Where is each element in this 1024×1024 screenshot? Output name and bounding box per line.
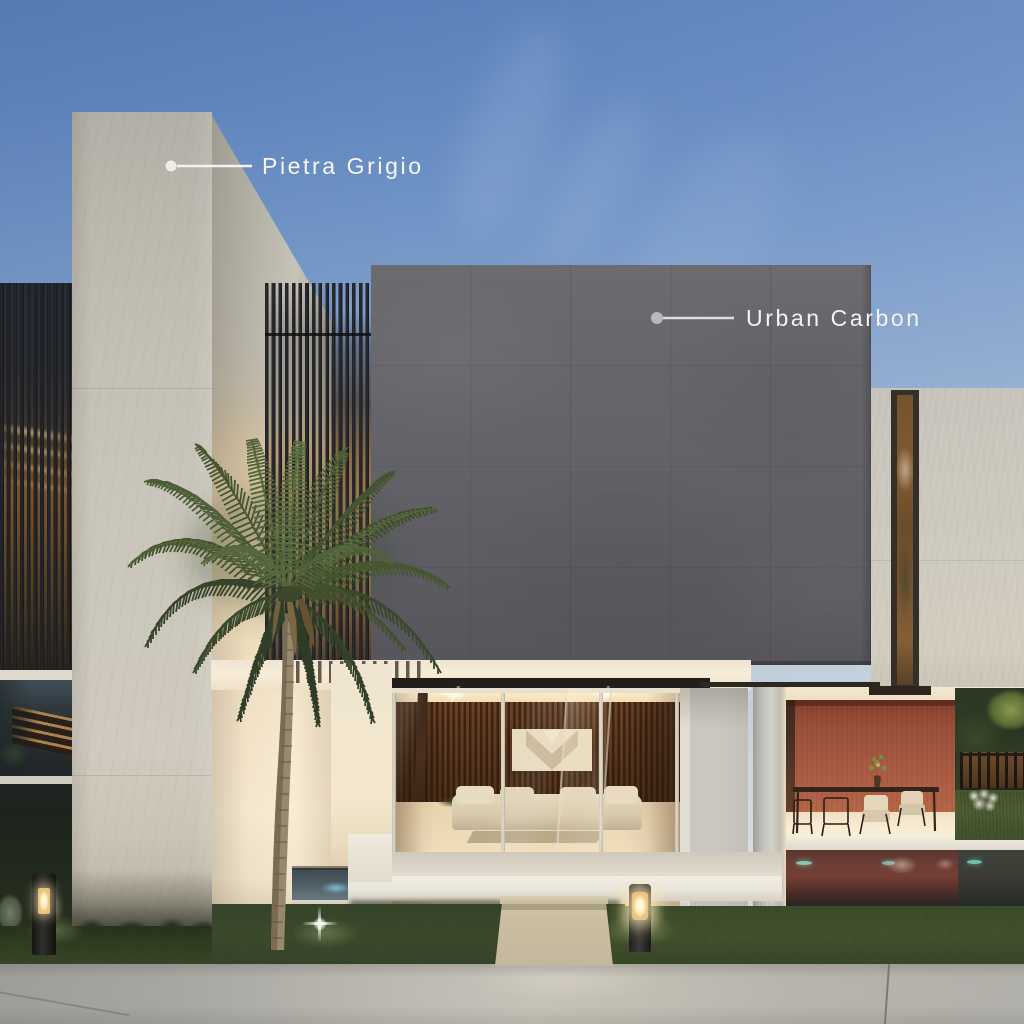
svg-text:Urban Carbon: Urban Carbon [746,305,922,331]
svg-text:Pietra Grigio: Pietra Grigio [262,153,424,179]
